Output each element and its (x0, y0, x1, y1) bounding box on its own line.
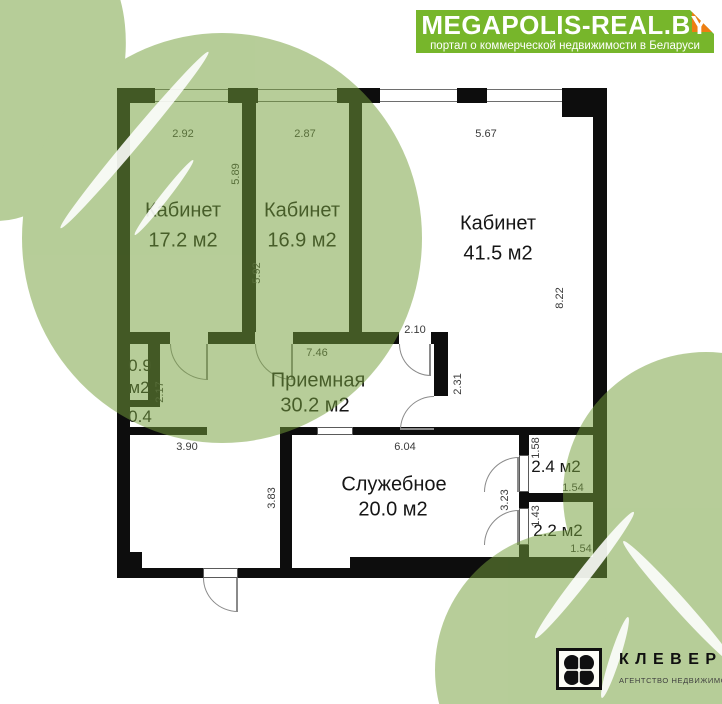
dim-1-43: 1.43 (530, 505, 542, 526)
dim-5-89: 5.89 (230, 163, 242, 184)
leaf-vein (132, 158, 197, 238)
door-opening-entrance (203, 568, 238, 578)
room-label-k1-name: Кабинет (145, 200, 221, 223)
door-arc-k3 (399, 344, 431, 376)
room-label-small2-area: 0.4 (128, 407, 152, 427)
dim-5-67: 5.67 (475, 128, 496, 140)
dim-2-92: 2.92 (172, 128, 193, 140)
floorplan-page: Кабинет 17.2 м2 Кабинет 16.9 м2 Кабинет … (0, 0, 722, 704)
clover-logo-icon (556, 648, 602, 690)
window (155, 89, 228, 102)
dim-1-54-wc2: 1.54 (570, 543, 591, 555)
dim-3-23: 3.23 (499, 489, 511, 510)
agency-name: КЛЕВЕР (619, 651, 722, 669)
dim-6-04: 6.04 (394, 441, 415, 453)
wall-wc-left (519, 545, 529, 557)
room-label-service-name: Служебное (341, 474, 446, 497)
door-arc-k1 (170, 344, 208, 380)
door-opening-wc1 (519, 455, 529, 492)
wall-offices-bottom (293, 332, 399, 344)
wall-k1-k2 (242, 103, 256, 332)
wall-right (593, 88, 607, 578)
room-label-reception-area: 30.2 м2 (280, 395, 349, 418)
wall-wc-divider (519, 493, 593, 502)
wall-wc-left (519, 427, 529, 455)
dim-3-90: 3.90 (176, 441, 197, 453)
wall-top-pier (457, 88, 487, 103)
wall-notch (128, 552, 142, 568)
agency-tagline: АГЕНТСТВО НЕДВИЖИМОСТИ (619, 676, 722, 685)
wall-bottom (350, 557, 607, 578)
room-label-k3-name: Кабинет (460, 213, 536, 236)
wall-top-pier (228, 88, 258, 103)
dim-5-92: 5.92 (251, 262, 263, 283)
wall-bottom (238, 568, 350, 578)
door-opening-service (317, 427, 353, 435)
dim-7-46: 7.46 (306, 347, 327, 359)
window (258, 89, 337, 102)
wall-service-left (280, 427, 292, 568)
door-arc-wc1 (484, 457, 519, 492)
site-subtitle: портал о коммерческой недвижимости в Бел… (416, 40, 714, 52)
dim-8-22: 8.22 (554, 287, 566, 308)
room-label-wc1-area: 2.4 м2 (531, 457, 581, 477)
wall-offices-bottom (117, 332, 170, 344)
door-arc-wc2 (484, 510, 519, 545)
wall-bottom (117, 568, 203, 578)
room-label-k1-area: 17.2 м2 (148, 230, 217, 253)
dim-2-31: 2.31 (452, 373, 464, 394)
wall-service-top (353, 427, 607, 435)
dim-2-17: 2.17 (154, 381, 166, 402)
dim-3-83: 3.83 (266, 487, 278, 508)
room-label-k3-area: 41.5 м2 (463, 243, 532, 266)
room-label-small1-area: 0.9 (128, 356, 152, 376)
wall-k2-k3 (349, 103, 362, 332)
room-label-reception-name: Приемная (271, 370, 366, 393)
room-label-k2-area: 16.9 м2 (267, 230, 336, 253)
dim-2-10: 2.10 (404, 324, 425, 336)
room-label-k2-name: Кабинет (264, 200, 340, 223)
room-label-service-area: 20.0 м2 (358, 499, 427, 522)
wall-top-pier (117, 88, 155, 103)
dim-1-58: 1.58 (530, 437, 542, 458)
site-title: MEGAPOLIS-REAL.BY (416, 11, 714, 40)
wall-top-pier (337, 88, 380, 103)
door-opening-wc2 (519, 508, 529, 545)
wall-reception-right (434, 332, 448, 396)
window (380, 89, 457, 102)
dim-2-87: 2.87 (294, 128, 315, 140)
leaf-vein (618, 537, 722, 668)
wall-middle (117, 427, 207, 435)
wall-top-right-corner (562, 88, 607, 117)
wall-offices-bottom (208, 332, 255, 344)
site-banner: MEGAPOLIS-REAL.BY портал о коммерческой … (416, 10, 714, 53)
door-arc-entrance (203, 578, 238, 612)
room-label-small1-unit: м2 (128, 378, 149, 398)
window (487, 89, 562, 102)
door-arc-reception (400, 396, 434, 430)
dim-1-54-wc1: 1.54 (562, 482, 583, 494)
